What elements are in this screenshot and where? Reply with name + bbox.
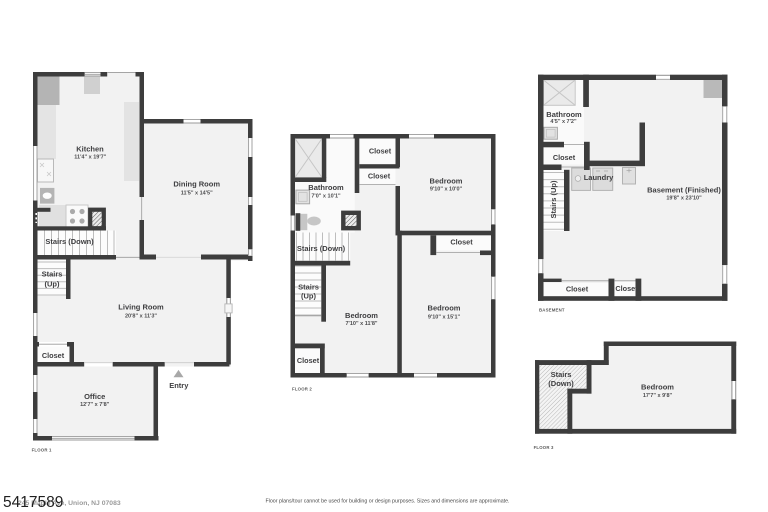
svg-text:Basement (Finished): Basement (Finished) bbox=[647, 186, 721, 195]
svg-text:Closet: Closet bbox=[566, 285, 589, 294]
svg-text:Living Room: Living Room bbox=[118, 303, 164, 312]
svg-text:Floor plans/tour cannot be use: Floor plans/tour cannot be used for buil… bbox=[265, 499, 509, 505]
svg-text:Bathroom: Bathroom bbox=[546, 110, 582, 119]
svg-text:Closet: Closet bbox=[42, 351, 65, 360]
svg-text:Stairs: Stairs bbox=[298, 283, 319, 292]
svg-text:Bedroom: Bedroom bbox=[428, 304, 461, 313]
svg-text:Bedroom: Bedroom bbox=[345, 311, 378, 320]
svg-text:Stairs: Stairs bbox=[551, 370, 572, 379]
svg-text:Laundry: Laundry bbox=[584, 173, 614, 182]
svg-text:FLOOR 2: FLOOR 2 bbox=[292, 387, 312, 392]
svg-text:FLOOR 1: FLOOR 1 bbox=[32, 448, 52, 453]
svg-text:FLOOR 3: FLOOR 3 bbox=[534, 445, 554, 450]
svg-text:11'4" x 19'7": 11'4" x 19'7" bbox=[74, 155, 106, 161]
svg-text:(Up): (Up) bbox=[45, 280, 60, 289]
svg-text:9'10" x 15'1": 9'10" x 15'1" bbox=[428, 315, 461, 321]
svg-text:Closet: Closet bbox=[297, 356, 320, 365]
svg-text:Bedroom: Bedroom bbox=[641, 383, 674, 392]
svg-text:(Down): (Down) bbox=[548, 379, 574, 388]
svg-text:Closet: Closet bbox=[553, 153, 576, 162]
svg-text:Bedroom: Bedroom bbox=[430, 176, 463, 185]
svg-text:7'0" x 10'1": 7'0" x 10'1" bbox=[311, 194, 341, 200]
svg-text:Dining Room: Dining Room bbox=[173, 180, 220, 189]
svg-text:(Up): (Up) bbox=[301, 292, 316, 301]
svg-text:Stairs (Up): Stairs (Up) bbox=[549, 180, 558, 218]
svg-text:17'7" x 9'8": 17'7" x 9'8" bbox=[643, 393, 673, 399]
svg-text:20'8" x 11'3": 20'8" x 11'3" bbox=[125, 314, 157, 320]
svg-text:19'8" x 23'10": 19'8" x 23'10" bbox=[666, 196, 702, 202]
svg-text:9'10" x 10'0": 9'10" x 10'0" bbox=[430, 187, 463, 193]
svg-text:Kitchen: Kitchen bbox=[76, 144, 104, 153]
svg-text:BASEMENT: BASEMENT bbox=[539, 307, 565, 312]
svg-text:11'5" x 14'5": 11'5" x 14'5" bbox=[181, 191, 213, 197]
svg-text:5417589: 5417589 bbox=[3, 494, 63, 511]
svg-text:Closet: Closet bbox=[450, 238, 473, 247]
svg-text:Entry: Entry bbox=[169, 381, 189, 390]
svg-text:Stairs (Down): Stairs (Down) bbox=[45, 237, 94, 246]
svg-text:4'5" x 7'2": 4'5" x 7'2" bbox=[550, 119, 577, 125]
svg-text:Closet: Closet bbox=[369, 146, 392, 155]
svg-text:Office: Office bbox=[84, 392, 105, 401]
svg-text:Closet: Closet bbox=[368, 172, 391, 181]
svg-text:12'7" x 7'8": 12'7" x 7'8" bbox=[80, 402, 110, 408]
svg-text:Stairs (Down): Stairs (Down) bbox=[297, 244, 346, 253]
svg-text:Stairs: Stairs bbox=[42, 270, 63, 279]
svg-text:Closet: Closet bbox=[615, 284, 638, 293]
svg-text:Bathroom: Bathroom bbox=[308, 183, 344, 192]
svg-text:7'10" x 11'8": 7'10" x 11'8" bbox=[346, 321, 378, 327]
